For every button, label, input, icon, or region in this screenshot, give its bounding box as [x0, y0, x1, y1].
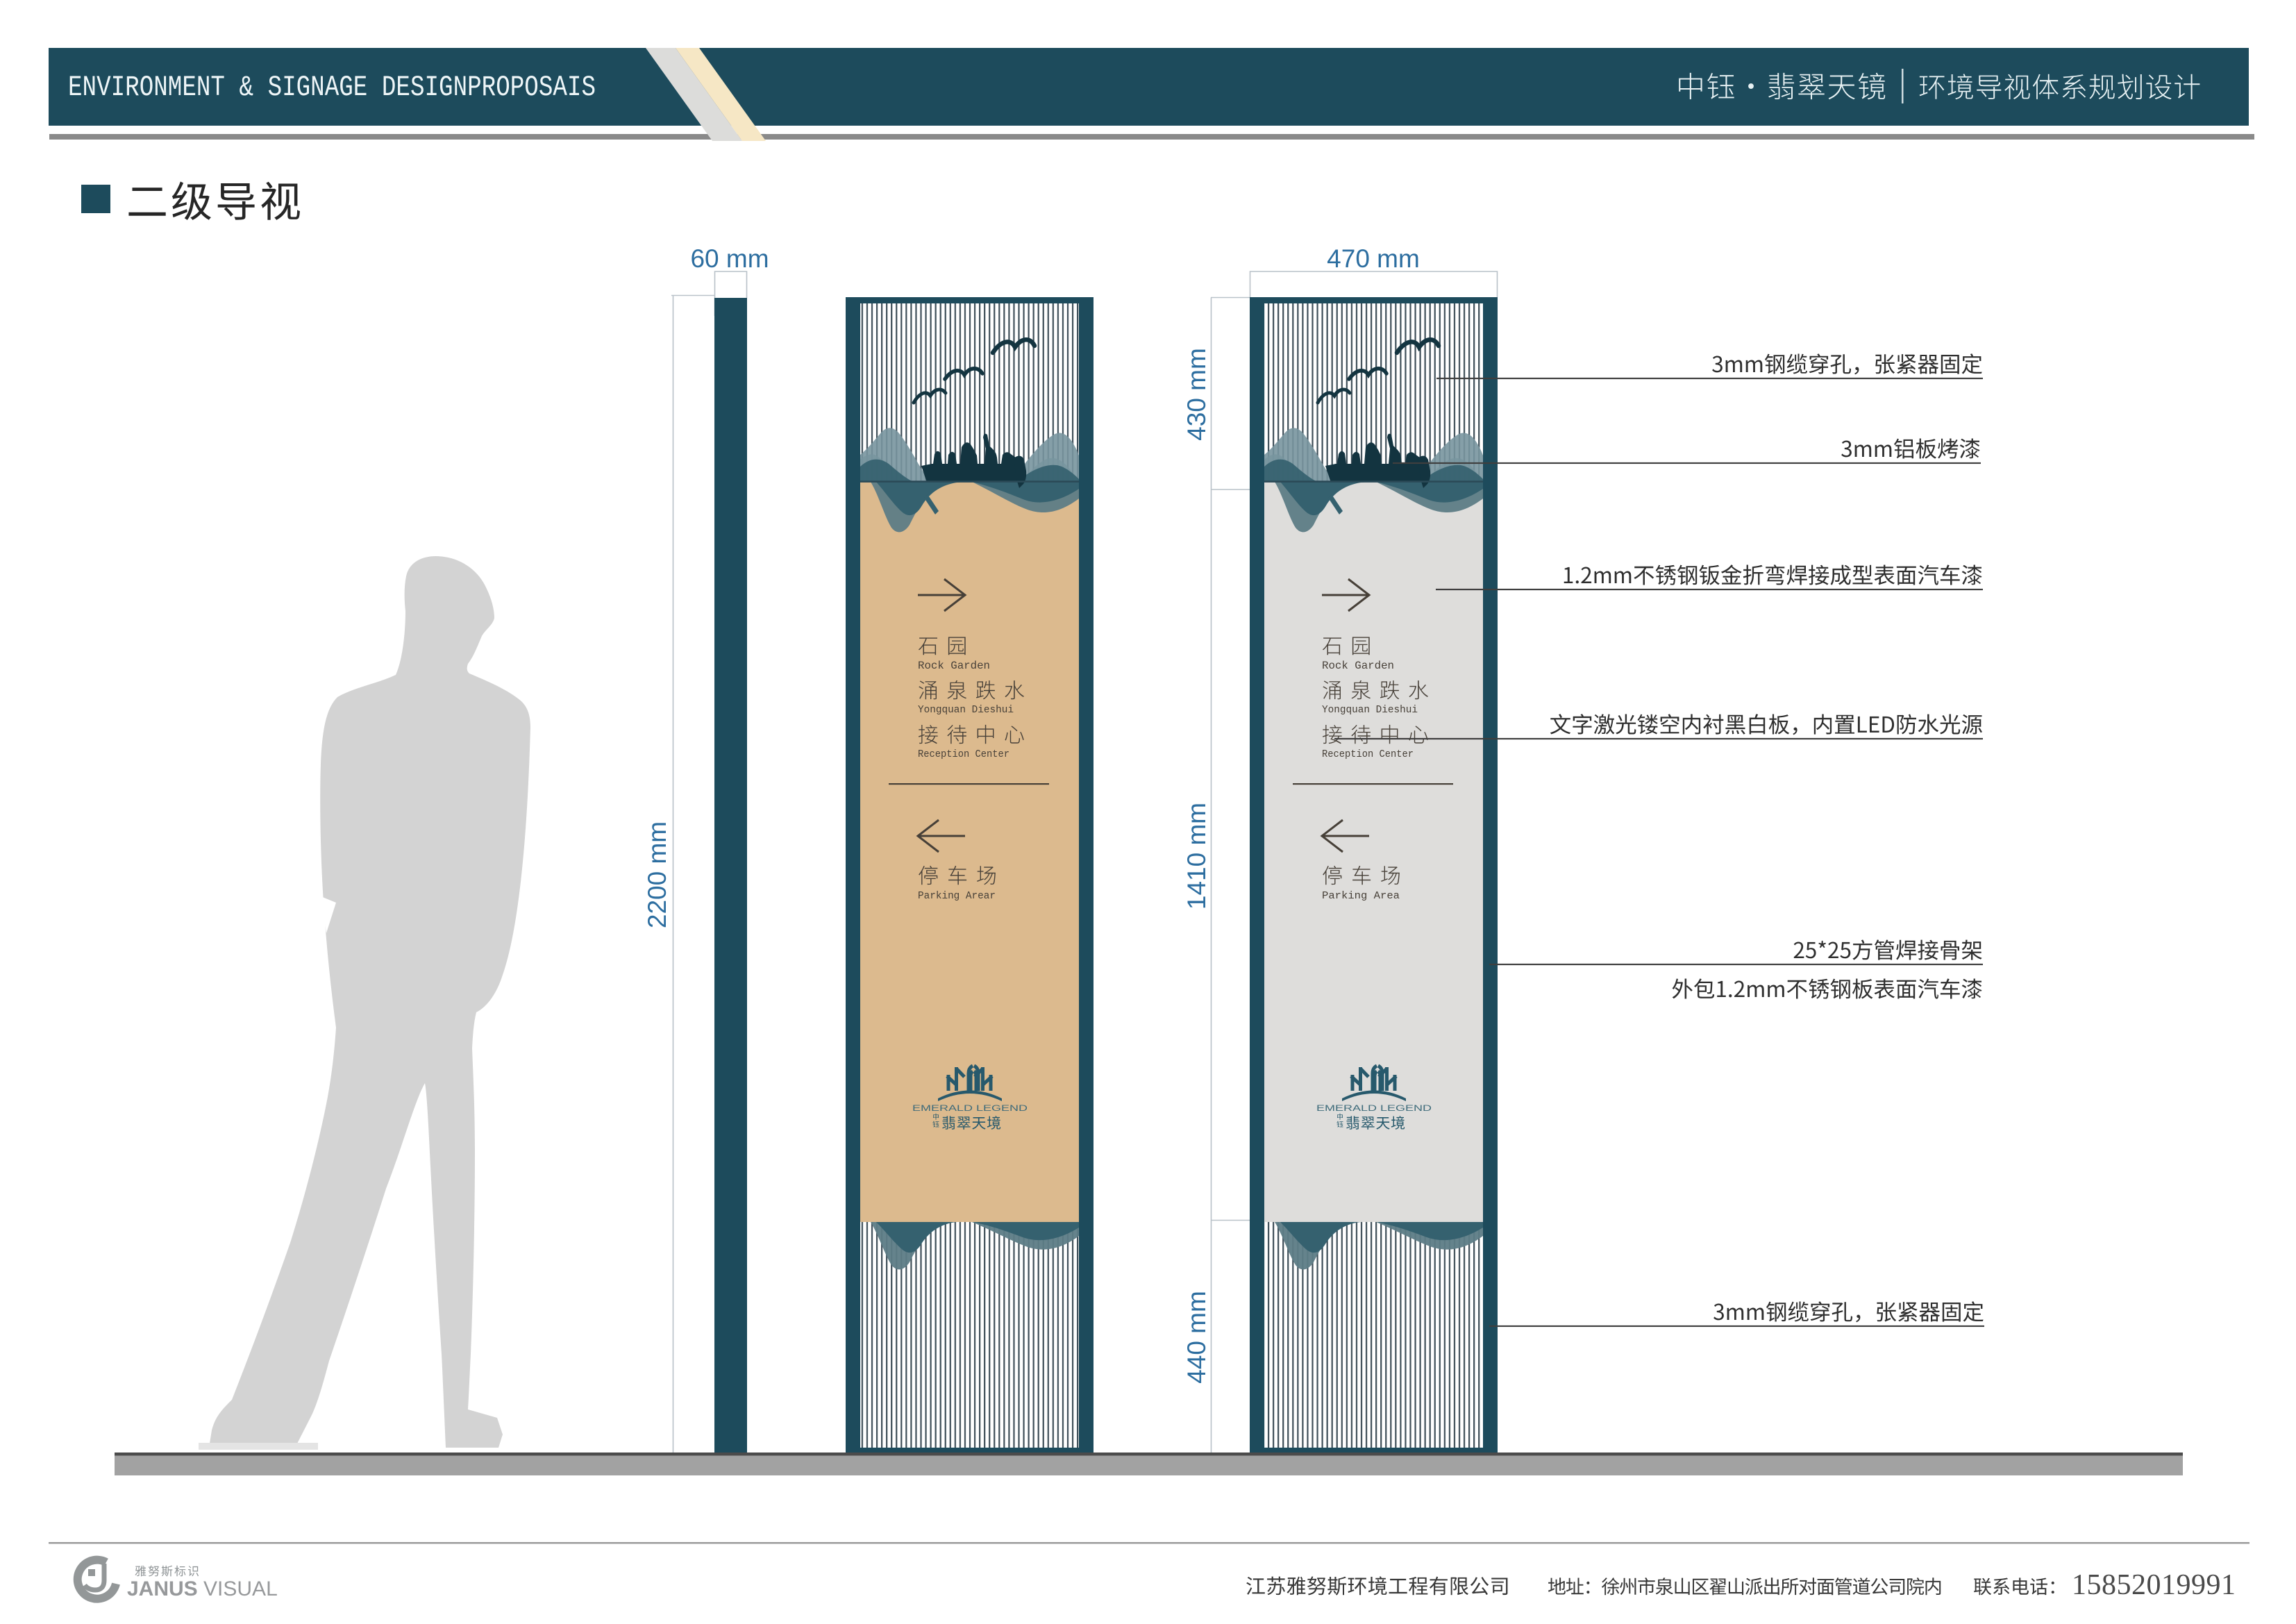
svg-text:EMERALD LEGEND: EMERALD LEGEND: [1316, 1105, 1432, 1113]
svg-text:Parking Arear: Parking Arear: [918, 890, 996, 902]
svg-text:440 mm: 440 mm: [1182, 1291, 1211, 1384]
svg-text:Yongquan Dieshui: Yongquan Dieshui: [918, 704, 1014, 716]
svg-text:1410 mm: 1410 mm: [1182, 803, 1211, 910]
svg-text:Reception Center: Reception Center: [1322, 748, 1414, 760]
svg-text:Parking Area: Parking Area: [1322, 890, 1400, 902]
svg-text:15852019991: 15852019991: [2072, 1569, 2236, 1601]
svg-text:Rock Garden: Rock Garden: [1322, 660, 1394, 672]
svg-text:JANUS VISUAL: JANUS VISUAL: [127, 1577, 278, 1600]
svg-text:Reception Center: Reception Center: [918, 748, 1009, 760]
svg-text:EMERALD LEGEND: EMERALD LEGEND: [912, 1105, 1028, 1113]
svg-text:430 mm: 430 mm: [1182, 348, 1211, 441]
svg-text:ENVIRONMENT & SIGNAGE DESIGNPR: ENVIRONMENT & SIGNAGE DESIGNPROPOSAIS: [68, 71, 596, 104]
svg-text:Rock Garden: Rock Garden: [918, 660, 990, 672]
svg-text:Yongquan Dieshui: Yongquan Dieshui: [1322, 704, 1418, 716]
svg-text:2200 mm: 2200 mm: [643, 821, 671, 928]
svg-text:60 mm: 60 mm: [690, 244, 769, 273]
svg-text:470 mm: 470 mm: [1327, 244, 1420, 273]
